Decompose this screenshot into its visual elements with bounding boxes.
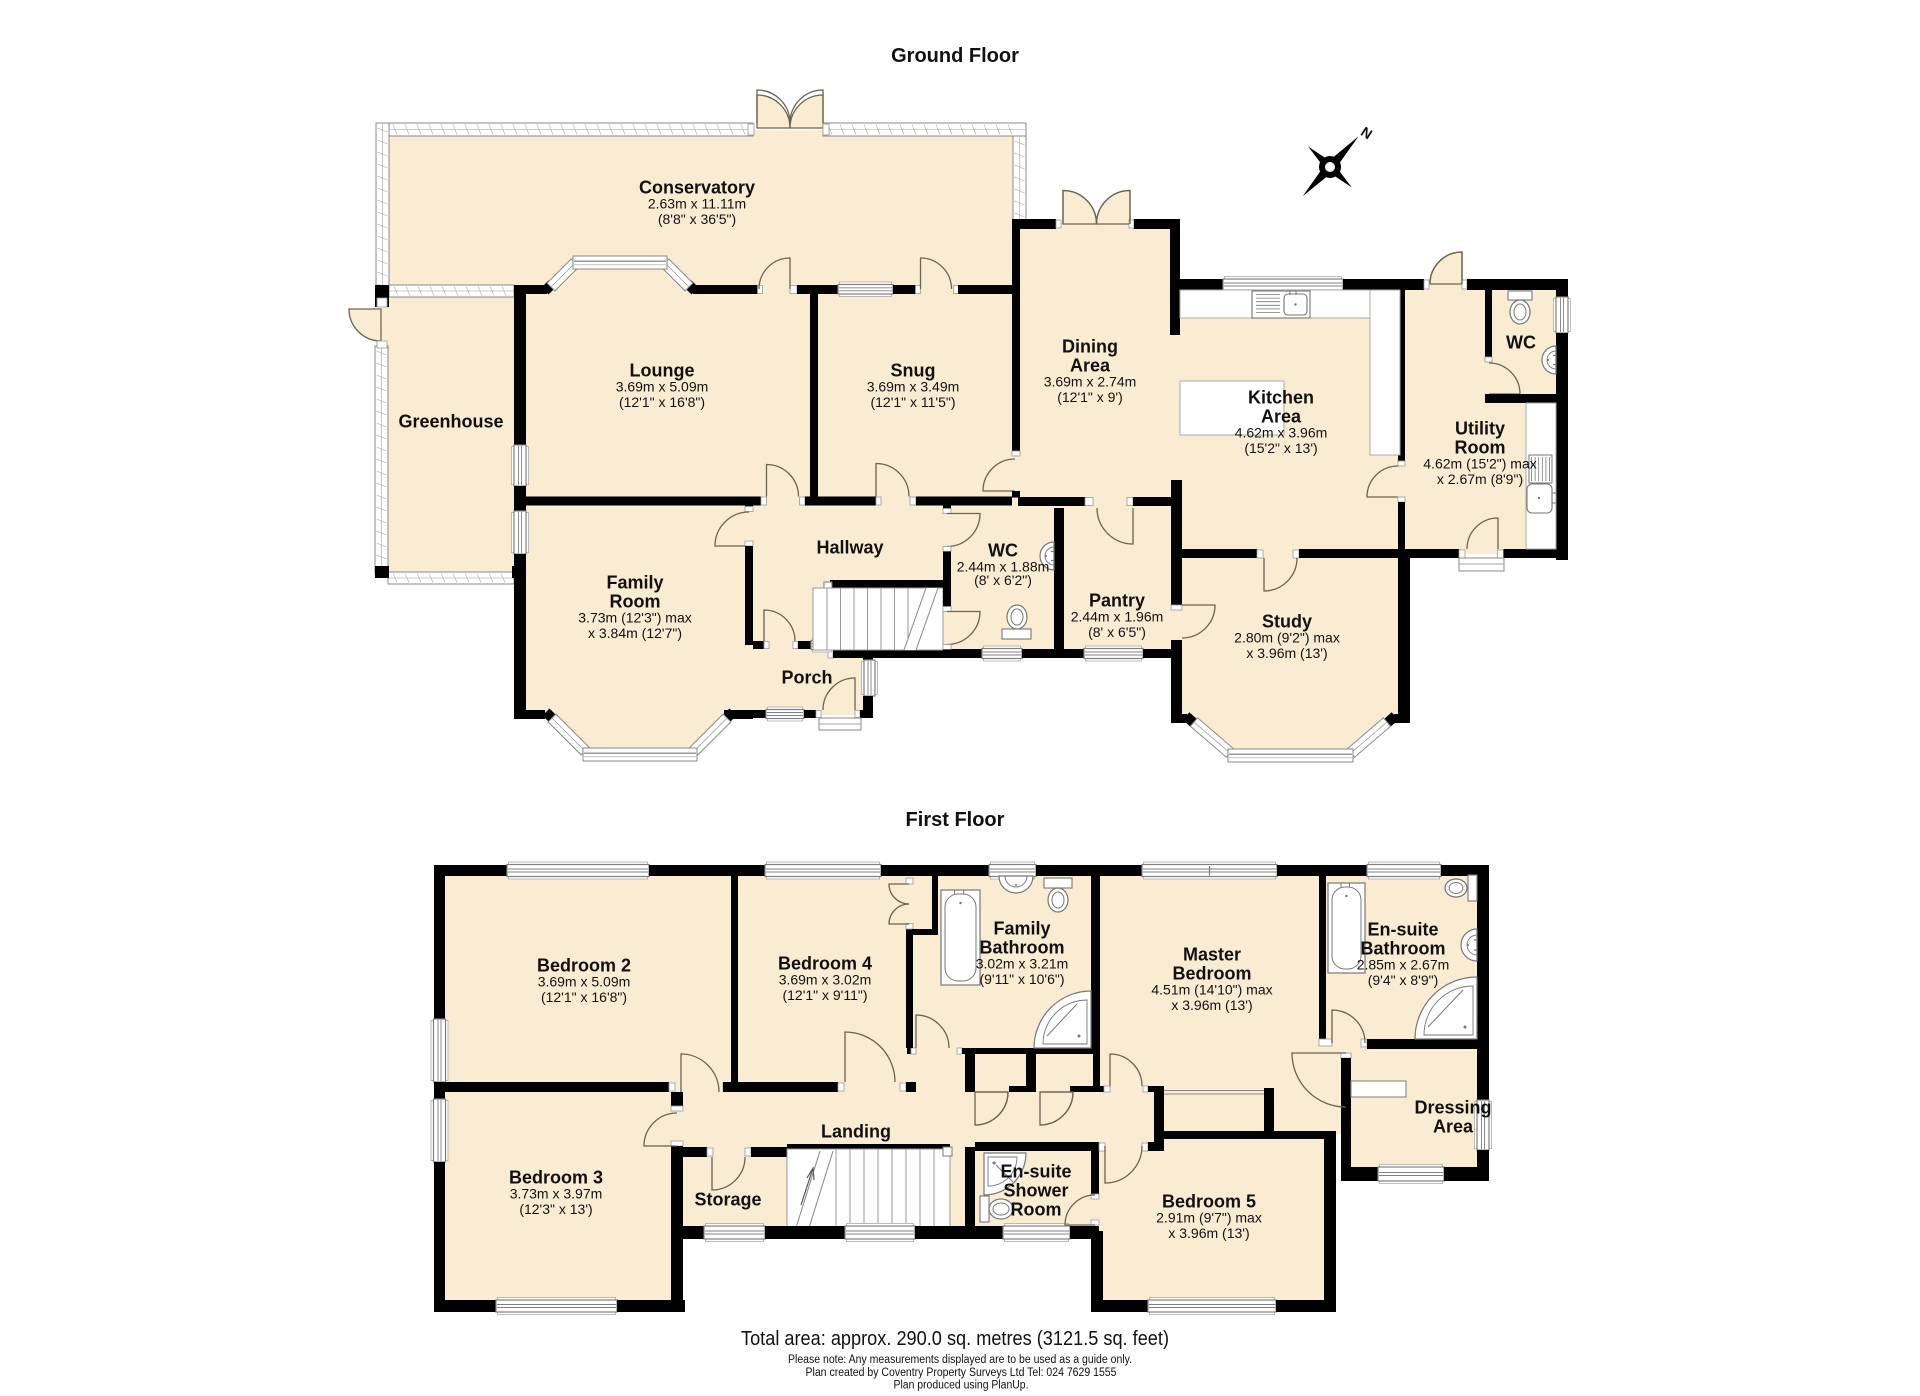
svg-text:2.44m x 1.96m: 2.44m x 1.96m [1071,609,1164,625]
svg-text:Please note: Any measurements: Please note: Any measurements displayed … [788,1354,1132,1366]
svg-text:En-suite: En-suite [1367,919,1438,939]
svg-text:(8' x 6'2"): (8' x 6'2") [974,572,1032,588]
svg-text:Hallway: Hallway [816,537,883,557]
svg-text:(12'1" x 16'8"): (12'1" x 16'8") [619,394,705,410]
svg-text:WC: WC [1506,332,1536,352]
svg-text:Bedroom: Bedroom [1172,963,1251,983]
svg-text:First Floor: First Floor [906,809,1005,831]
svg-text:WC: WC [988,540,1018,560]
svg-text:x 3.96m (13'): x 3.96m (13') [1171,997,1252,1013]
svg-text:(12'1" x 9'11"): (12'1" x 9'11") [782,987,867,1003]
svg-text:Bedroom 5: Bedroom 5 [1162,1191,1256,1211]
svg-text:Study: Study [1262,611,1312,631]
svg-text:3.69m x 5.09m: 3.69m x 5.09m [538,974,631,990]
svg-text:Master: Master [1183,944,1241,964]
svg-text:Landing: Landing [821,1121,891,1141]
svg-text:Porch: Porch [781,667,832,687]
svg-text:3.73m x 3.97m: 3.73m x 3.97m [510,1186,603,1202]
svg-text:Plan produced using PlanUp.: Plan produced using PlanUp. [894,1380,1029,1392]
svg-text:4.51m (14'10") max: 4.51m (14'10") max [1151,982,1272,998]
svg-text:Bedroom 4: Bedroom 4 [778,953,872,973]
svg-text:x 3.96m (13'): x 3.96m (13') [1168,1225,1249,1241]
svg-text:2.63m x 11.11m: 2.63m x 11.11m [648,196,746,212]
svg-text:Dining: Dining [1062,336,1118,356]
svg-text:(12'3" x 13'): (12'3" x 13') [519,1201,592,1217]
svg-text:2.80m (9'2") max: 2.80m (9'2") max [1234,630,1340,646]
svg-text:4.62m (15'2") max: 4.62m (15'2") max [1423,456,1536,472]
svg-text:Lounge: Lounge [630,360,695,380]
svg-text:En-suite: En-suite [1000,1161,1071,1181]
svg-text:3.69m x 3.49m: 3.69m x 3.49m [867,379,960,395]
svg-text:3.69m x 2.74m: 3.69m x 2.74m [1044,374,1137,390]
svg-text:3.02m x 3.21m: 3.02m x 3.21m [976,956,1069,972]
svg-text:x 3.96m (13'): x 3.96m (13') [1246,645,1327,661]
svg-text:Room: Room [1011,1199,1062,1219]
svg-text:3.69m x 3.02m: 3.69m x 3.02m [779,972,872,988]
svg-text:(12'1" x 9'): (12'1" x 9') [1057,389,1123,405]
svg-text:(12'1" x 11'5"): (12'1" x 11'5") [870,394,955,410]
svg-text:Pantry: Pantry [1089,590,1145,610]
svg-text:(8' x 6'5"): (8' x 6'5") [1088,624,1146,640]
svg-text:Area: Area [1261,406,1302,426]
svg-text:(15'2" x 13'): (15'2" x 13') [1244,440,1317,456]
svg-text:Room: Room [1455,437,1506,457]
svg-text:Ground Floor: Ground Floor [891,45,1019,67]
svg-text:Bedroom 2: Bedroom 2 [537,955,631,975]
svg-text:Family: Family [993,918,1050,938]
svg-text:2.85m x 2.67m: 2.85m x 2.67m [1357,957,1450,973]
svg-text:Snug: Snug [891,360,936,380]
svg-text:(12'1" x 16'8"): (12'1" x 16'8") [541,989,627,1005]
svg-text:Kitchen: Kitchen [1248,387,1314,407]
svg-text:(9'4" x 8'9"): (9'4" x 8'9") [1368,972,1439,988]
svg-text:Bathroom: Bathroom [1361,938,1446,958]
svg-text:Area: Area [1070,355,1111,375]
svg-text:(8'8" x 36'5"): (8'8" x 36'5") [658,211,736,227]
svg-text:Shower: Shower [1003,1180,1068,1200]
svg-text:Plan created by Coventry Prope: Plan created by Coventry Property Survey… [806,1367,1117,1379]
svg-text:Bathroom: Bathroom [980,937,1065,957]
svg-text:Dressing: Dressing [1414,1097,1491,1117]
svg-text:Area: Area [1433,1116,1474,1136]
svg-text:x 3.84m (12'7"): x 3.84m (12'7") [588,625,682,641]
svg-text:Conservatory: Conservatory [639,177,755,197]
svg-text:Utility: Utility [1455,418,1505,438]
svg-text:Greenhouse: Greenhouse [398,411,503,431]
svg-text:(9'11" x 10'6"): (9'11" x 10'6") [979,971,1064,987]
svg-text:Total area: approx. 290.0 sq.: Total area: approx. 290.0 sq. metres (31… [741,1328,1169,1350]
svg-text:3.69m x 5.09m: 3.69m x 5.09m [616,379,709,395]
svg-text:Family: Family [606,572,663,592]
svg-text:4.62m x 3.96m: 4.62m x 3.96m [1235,425,1328,441]
svg-text:x 2.67m (8'9"): x 2.67m (8'9") [1437,471,1523,487]
svg-text:Room: Room [610,591,661,611]
svg-text:Bedroom 3: Bedroom 3 [509,1167,603,1187]
svg-text:Storage: Storage [694,1189,761,1209]
svg-text:3.73m (12'3") max: 3.73m (12'3") max [578,610,691,626]
svg-text:2.91m (9'7") max: 2.91m (9'7") max [1156,1210,1262,1226]
